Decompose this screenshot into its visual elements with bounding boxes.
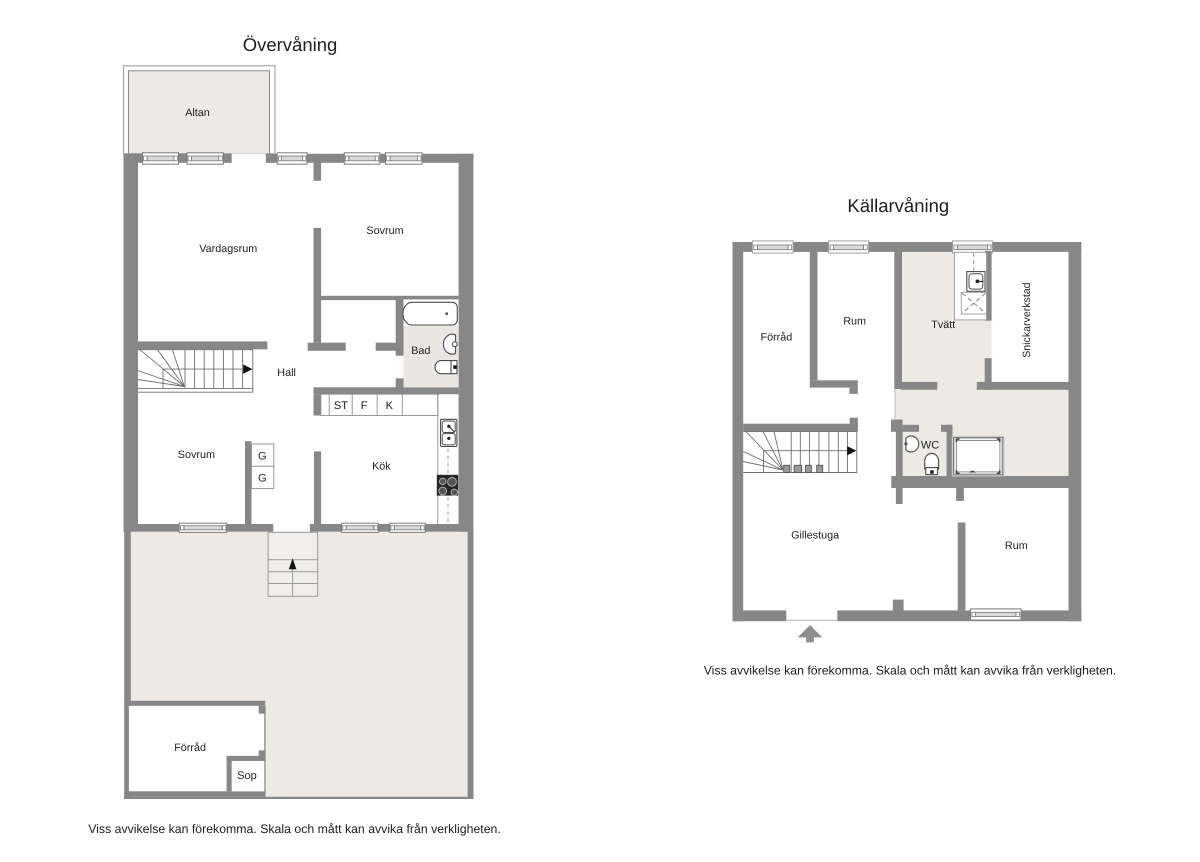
svg-text:ST: ST (334, 400, 348, 412)
svg-text:Tvätt: Tvätt (931, 319, 955, 331)
svg-text:Hall: Hall (277, 367, 296, 379)
svg-text:Sop: Sop (237, 770, 257, 782)
svg-text:G: G (258, 473, 267, 485)
svg-text:Rum: Rum (843, 316, 866, 328)
svg-text:Bad: Bad (411, 345, 430, 357)
svg-text:Rum: Rum (1005, 540, 1028, 552)
svg-text:Vardagsrum: Vardagsrum (199, 243, 257, 255)
svg-text:F: F (361, 400, 368, 412)
svg-text:Snickarverkstad: Snickarverkstad (1021, 282, 1033, 357)
svg-text:Sovrum: Sovrum (178, 449, 215, 461)
svg-text:Altan: Altan (185, 107, 210, 119)
svg-text:Viss avvikelse kan förekomma.: Viss avvikelse kan förekomma. Skala och … (704, 664, 1117, 678)
svg-text:K: K (386, 400, 394, 412)
svg-text:WC: WC (921, 440, 939, 452)
svg-text:Övervåning: Övervåning (243, 34, 338, 55)
svg-text:Viss avvikelse kan förekomma.: Viss avvikelse kan förekomma. Skala och … (88, 822, 501, 836)
svg-text:G: G (258, 451, 267, 463)
svg-text:Källarvåning: Källarvåning (847, 195, 949, 216)
svg-text:Sovrum: Sovrum (366, 225, 403, 237)
svg-text:Förråd: Förråd (174, 742, 206, 754)
svg-text:Förråd: Förråd (760, 331, 792, 343)
svg-text:Gillestuga: Gillestuga (791, 530, 839, 542)
svg-text:Kök: Kök (372, 460, 391, 472)
